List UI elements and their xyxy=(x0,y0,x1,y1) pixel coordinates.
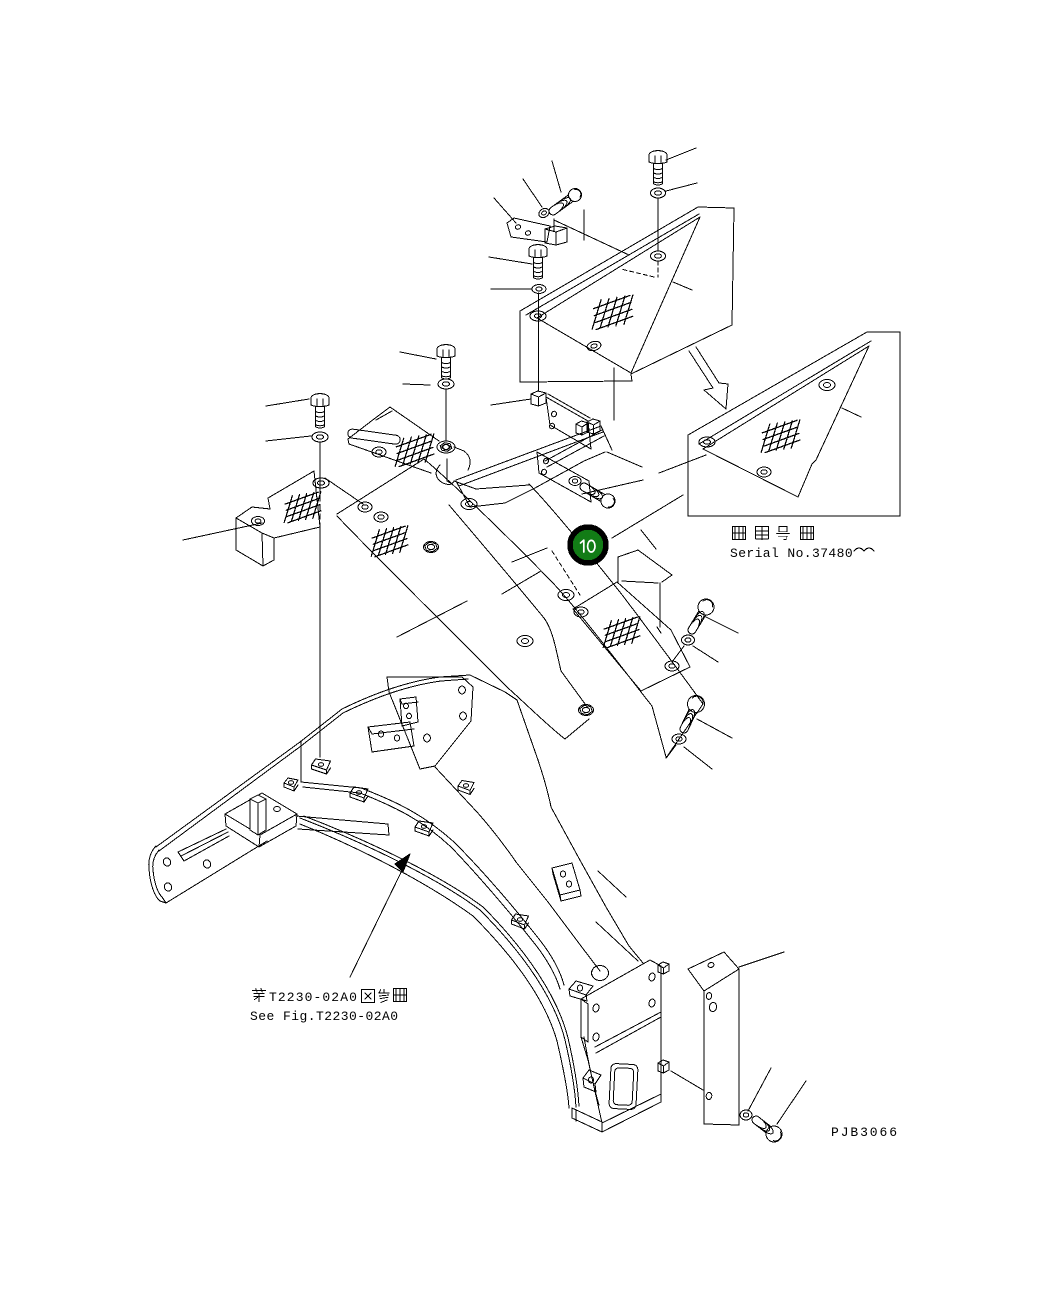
svg-text:PJB3066: PJB3066 xyxy=(831,1125,899,1140)
svg-text:See Fig.T2230-02A0: See Fig.T2230-02A0 xyxy=(250,1009,399,1024)
svg-text:Serial No.37480: Serial No.37480 xyxy=(730,546,853,561)
svg-text:T2230-02A0: T2230-02A0 xyxy=(269,990,358,1005)
